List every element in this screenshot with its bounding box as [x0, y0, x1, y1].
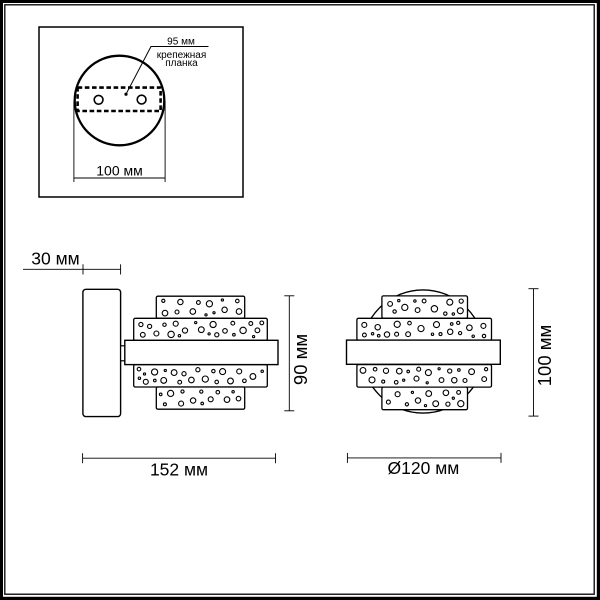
svg-text:планка: планка [165, 58, 198, 69]
svg-text:90 мм: 90 мм [290, 334, 311, 385]
svg-text:95 мм: 95 мм [167, 36, 195, 47]
svg-text:100 мм: 100 мм [534, 325, 555, 386]
svg-text:Ø120 мм: Ø120 мм [388, 458, 460, 478]
svg-text:30 мм: 30 мм [31, 249, 79, 269]
svg-text:152 мм: 152 мм [150, 459, 208, 479]
svg-text:100 мм: 100 мм [96, 163, 143, 179]
